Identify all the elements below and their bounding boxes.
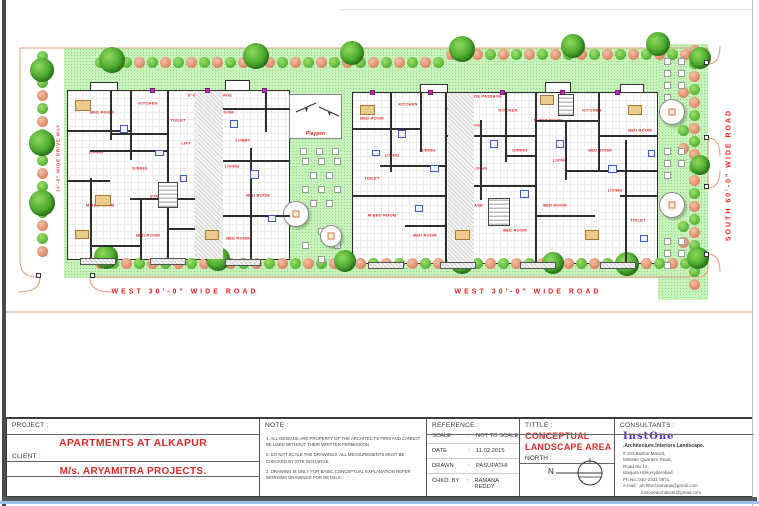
furniture — [490, 140, 498, 148]
shrub-icon — [576, 258, 587, 269]
gazebo — [320, 225, 342, 247]
door-mark — [560, 90, 565, 95]
furniture — [268, 215, 276, 222]
wall — [620, 195, 658, 197]
shrub-icon — [225, 57, 236, 68]
reference-row: DATE:11.02.2015 — [427, 444, 519, 458]
furniture — [608, 165, 617, 173]
reference-value: PASUPATHI — [476, 463, 508, 474]
room-label: KITCHEN — [138, 101, 157, 106]
shrub-icon — [329, 57, 340, 68]
shrub-icon — [678, 125, 689, 136]
room-label: LIVING — [225, 164, 240, 169]
tree-icon — [334, 250, 356, 272]
reference-key: DRAWN — [432, 463, 468, 474]
stepping-stone — [332, 148, 339, 155]
stepping-stone — [326, 200, 333, 207]
room-label: TOILET — [364, 176, 379, 181]
wall — [90, 178, 92, 260]
wall — [535, 92, 537, 264]
shrub-icon — [689, 71, 700, 82]
stepping-stone — [664, 82, 671, 89]
balcony — [150, 258, 186, 265]
wall — [90, 245, 140, 247]
west-road-label-right: WEST 30'-0" WIDE ROAD — [455, 289, 602, 296]
furniture — [230, 120, 238, 128]
shrub-icon — [498, 49, 509, 60]
wall — [250, 148, 252, 260]
room-label: LOBBY — [236, 138, 251, 143]
shrub-icon — [212, 57, 223, 68]
reference-row: DRAWN:PASUPATHI — [427, 459, 519, 473]
furniture — [155, 150, 164, 156]
wall — [140, 200, 142, 260]
door-mark — [615, 90, 620, 95]
stepping-stone — [316, 148, 323, 155]
gazebo — [659, 99, 685, 125]
shrub-icon — [37, 116, 48, 127]
shrub-icon — [407, 258, 418, 269]
sheet-top-line — [340, 9, 753, 10]
room-label: BED ROOM — [588, 148, 612, 153]
stepping-stone — [302, 242, 309, 249]
shrub-icon — [134, 57, 145, 68]
shrub-icon — [550, 49, 561, 60]
shrub-icon — [689, 201, 700, 212]
wall — [535, 120, 600, 122]
shrub-icon — [37, 90, 48, 101]
wall — [405, 225, 445, 227]
note-item: 1. ALL DESIGNS ARE PROPERTY OF THE ARCHI… — [266, 436, 422, 448]
reference-label: REFERENCE : — [427, 419, 519, 429]
furniture — [585, 230, 599, 240]
stepping-stone — [302, 158, 309, 165]
shrub-icon — [420, 57, 431, 68]
reference-colon: : — [468, 463, 476, 474]
note-item: 2. DO NOT SCALE THE DRAWINGS. ALL MEASUR… — [266, 452, 422, 464]
shrub-icon — [303, 258, 314, 269]
shrub-icon — [147, 57, 158, 68]
tree-icon — [687, 247, 709, 269]
wall — [167, 90, 169, 260]
tree-icon — [94, 245, 118, 269]
wall — [220, 215, 290, 217]
furniture — [556, 140, 564, 148]
shrub-icon — [277, 258, 288, 269]
shrub-icon — [689, 110, 700, 121]
shrub-icon — [37, 103, 48, 114]
shrub-icon — [563, 258, 574, 269]
note-items: 1. ALL DESIGNS ARE PROPERTY OF THE ARCHI… — [260, 436, 426, 481]
room-label: BED ROOM — [226, 236, 250, 241]
tree-icon — [243, 43, 269, 69]
shrub-icon — [290, 57, 301, 68]
door-mark — [370, 90, 375, 95]
shrub-icon — [678, 221, 689, 232]
gate-post — [90, 273, 95, 278]
room-label: BED ROOM — [628, 128, 652, 133]
tree-icon — [561, 34, 585, 58]
tree-icon — [340, 41, 364, 65]
shrub-icon — [689, 188, 700, 199]
balcony — [600, 262, 636, 269]
wall — [265, 90, 267, 132]
wall — [110, 133, 167, 135]
wall — [625, 140, 627, 264]
door-mark — [150, 88, 155, 93]
sheet-right-border — [752, 0, 753, 506]
note-cell: NOTE : 1. ALL DESIGNS ARE PROPERTY OF TH… — [260, 419, 426, 496]
reference-key: CHKD. BY — [432, 478, 467, 489]
shrub-icon — [186, 57, 197, 68]
stepping-stone — [318, 186, 325, 193]
staircase — [488, 198, 510, 226]
tree-icon — [30, 58, 54, 82]
stepping-stone — [302, 186, 309, 193]
divider — [427, 458, 519, 459]
shrub-icon — [407, 57, 418, 68]
furniture — [540, 95, 554, 105]
door-mark — [500, 90, 505, 95]
stepping-stone — [678, 250, 685, 257]
door-mark — [428, 90, 433, 95]
address-line: instonearchitects@gmail.com — [615, 490, 754, 496]
furniture — [75, 100, 91, 111]
reference-row: SCALE:NOT TO SCALE — [427, 429, 519, 443]
room-label: BED ROOM — [543, 203, 567, 208]
shrub-icon — [689, 227, 700, 238]
shrub-icon — [121, 258, 132, 269]
wall — [465, 185, 535, 187]
playground-area: Playpen — [289, 94, 342, 139]
note-item: 3. DRAWING IS ONLY FOR BASIC CONCEPTUAL … — [266, 469, 422, 481]
furniture — [628, 105, 642, 115]
shrub-icon — [37, 246, 48, 257]
room-label: TOILET — [630, 218, 645, 223]
west-road-label-left: WEST 30'-0" WIDE ROAD — [112, 289, 259, 296]
balcony — [225, 259, 261, 266]
shrub-icon — [316, 57, 327, 68]
tree-icon — [690, 155, 710, 175]
door-mark — [205, 88, 210, 93]
shrub-icon — [485, 258, 496, 269]
wall — [352, 128, 420, 130]
shrub-icon — [689, 97, 700, 108]
furniture — [75, 230, 89, 239]
shrub-icon — [689, 84, 700, 95]
wall — [535, 215, 595, 217]
stepping-stone — [300, 148, 307, 155]
note-label: NOTE : — [260, 419, 426, 429]
stepping-stone — [678, 148, 685, 155]
shrub-icon — [160, 57, 171, 68]
drawing-title-line2: LANDSCAPE AREA — [520, 442, 614, 453]
consultants-label: CONSULTANTS : — [615, 419, 754, 429]
gate-post — [36, 273, 41, 278]
shrub-icon — [186, 258, 197, 269]
shrub-icon — [589, 49, 600, 60]
reference-rows: SCALE:NOT TO SCALEDATE:11.02.2015DRAWN:P… — [427, 429, 519, 488]
room-label: DINING — [132, 166, 147, 171]
wall — [480, 120, 482, 200]
stepping-stone — [664, 262, 671, 269]
stepping-stone — [678, 160, 685, 167]
gate-post — [704, 184, 709, 189]
reference-colon: : — [468, 448, 476, 459]
divider — [427, 443, 519, 444]
room-label: KITCHEN — [398, 102, 417, 107]
wall — [445, 92, 447, 264]
room-label: DINING — [512, 148, 527, 153]
stepping-stone — [318, 158, 325, 165]
furniture — [205, 230, 219, 240]
wall — [505, 155, 535, 157]
shrub-icon — [264, 258, 275, 269]
title-block: PROJECT : APARTMENTS AT ALKAPUR CLIENT :… — [6, 417, 753, 497]
furniture — [415, 205, 423, 212]
consultants-cell: CONSULTANTS : InstOne .Architecture.Inte… — [615, 419, 754, 496]
reference-key: DATE — [432, 448, 468, 459]
staircase — [158, 182, 178, 208]
furniture — [398, 130, 406, 138]
drawing-title-line1: CONCEPTUAL — [520, 429, 614, 442]
south-road-label: SOUTH 60'-0" WIDE ROAD — [726, 109, 733, 241]
room-label: BED ROOM — [503, 228, 527, 233]
gazebo — [659, 192, 685, 218]
shrub-icon — [355, 258, 366, 269]
tree-icon — [29, 130, 55, 156]
balcony — [440, 262, 476, 269]
reference-cell: REFERENCE : SCALE:NOT TO SCALEDATE:11.02… — [427, 419, 519, 496]
gate-post — [704, 60, 709, 65]
consultants-tagline: .Architecture.Interiors.Landscape. — [615, 442, 754, 449]
furniture — [455, 230, 470, 240]
wall — [390, 92, 392, 172]
consultants-address: # 103,Burton Manzil,Minister Quarters Ro… — [615, 451, 754, 496]
shrub-icon — [394, 57, 405, 68]
wall — [67, 180, 110, 182]
playground-label: Playpen — [306, 131, 325, 137]
shrub-icon — [537, 49, 548, 60]
stepping-stone — [664, 58, 671, 65]
shrub-icon — [511, 49, 522, 60]
wall — [505, 92, 507, 162]
shrub-icon — [368, 57, 379, 68]
balcony — [368, 262, 404, 269]
shrub-icon — [485, 49, 496, 60]
tree-icon — [449, 36, 475, 62]
stepping-stone — [664, 172, 671, 179]
wall — [598, 92, 600, 172]
room-label: BED ROOM — [360, 116, 384, 121]
shrub-icon — [277, 57, 288, 68]
wall — [420, 92, 422, 152]
shrub-icon — [524, 49, 535, 60]
gate-post — [704, 252, 709, 257]
room-label: LIVING — [608, 188, 623, 193]
tree-icon — [99, 47, 125, 73]
shrub-icon — [420, 258, 431, 269]
stepping-stone — [664, 160, 671, 167]
room-label: KITCHEN — [498, 108, 517, 113]
site-plan: Playpen WEST 30'-0" WIDE ROAD WEST 30'-0… — [0, 0, 759, 417]
stepping-stone — [678, 238, 685, 245]
shrub-icon — [498, 258, 509, 269]
furniture — [640, 235, 648, 242]
north-indicator: NORTH : N — [520, 453, 614, 489]
furniture — [430, 165, 439, 172]
shrub-icon — [689, 136, 700, 147]
title-cell: TITTLE : CONCEPTUAL LANDSCAPE AREA NORTH… — [520, 419, 614, 496]
shrub-icon — [689, 123, 700, 134]
divider — [427, 473, 519, 474]
stepping-stone — [310, 172, 317, 179]
furniture — [372, 150, 380, 156]
sheet-bottom-blue-line — [0, 501, 759, 504]
room-label: LIVING — [385, 153, 400, 158]
tree-icon — [646, 32, 670, 56]
furniture — [520, 190, 529, 198]
compass-icon — [554, 457, 610, 489]
room-label: BED ROOM — [413, 233, 437, 238]
shrub-icon — [173, 57, 184, 68]
balcony — [520, 262, 556, 269]
reference-colon: : — [467, 478, 475, 489]
tree-icon — [29, 190, 55, 216]
stepping-stone — [334, 158, 341, 165]
balcony — [80, 258, 116, 265]
shrub-icon — [37, 168, 48, 179]
reference-value: 11.02.2015 — [476, 448, 505, 459]
furniture — [95, 195, 111, 206]
instone-logo: InstOne — [615, 429, 754, 442]
stepping-stone — [678, 58, 685, 65]
wall — [352, 195, 445, 197]
door-mark — [262, 88, 267, 93]
shrub-icon — [689, 279, 700, 290]
shrub-icon — [37, 233, 48, 244]
sheet-left-border — [2, 0, 6, 506]
drawing-sheet: Playpen WEST 30'-0" WIDE ROAD WEST 30'-0… — [0, 0, 759, 506]
shrub-icon — [689, 175, 700, 186]
shrub-icon — [602, 49, 613, 60]
stepping-stone — [318, 256, 325, 263]
title-label: TITTLE : — [520, 419, 614, 429]
shrub-icon — [589, 258, 600, 269]
room-label: M.BED ROOM — [368, 213, 396, 218]
staircase — [558, 94, 574, 116]
driveway-label: 14'-0" WIDE DRIVE WAY — [56, 124, 61, 192]
shrub-icon — [615, 49, 626, 60]
reference-value: RAMANA REDDY — [474, 478, 519, 489]
furniture — [648, 150, 655, 157]
stepping-stone — [678, 70, 685, 77]
shrub-icon — [433, 57, 444, 68]
shrub-icon — [303, 57, 314, 68]
tree-icon — [689, 47, 711, 69]
shrub-icon — [37, 155, 48, 166]
stepping-stone — [678, 82, 685, 89]
stepping-stone — [664, 238, 671, 245]
gate-post — [704, 135, 709, 140]
shrub-icon — [290, 258, 301, 269]
shrub-icon — [628, 49, 639, 60]
project-cell: PROJECT : APARTMENTS AT ALKAPUR CLIENT :… — [7, 419, 259, 496]
wall — [598, 135, 658, 137]
furniture — [360, 105, 375, 115]
project-label: PROJECT : — [7, 419, 259, 429]
shrub-icon — [641, 258, 652, 269]
stepping-stone — [664, 250, 671, 257]
project-value: APARTMENTS AT ALKAPUR — [7, 437, 259, 449]
room-label: LIFT — [181, 141, 190, 146]
shrub-icon — [689, 214, 700, 225]
seesaw-icon — [318, 105, 340, 118]
client-label: CLIENT : — [7, 449, 259, 460]
shrub-icon — [37, 220, 48, 231]
furniture — [250, 170, 259, 179]
furniture — [120, 125, 128, 133]
north-letter: N — [548, 467, 554, 476]
shrub-icon — [381, 57, 392, 68]
reference-row: CHKD. BY:RAMANA REDDY — [427, 474, 519, 488]
room-label: TOILET — [170, 118, 185, 123]
shrub-icon — [199, 57, 210, 68]
stepping-stone — [310, 200, 317, 207]
seesaw-icon — [295, 101, 317, 114]
stepping-stone — [664, 148, 671, 155]
stepping-stone — [334, 186, 341, 193]
stepping-stone — [664, 70, 671, 77]
stepping-stone — [326, 172, 333, 179]
room-label: DINING — [420, 148, 435, 153]
gazebo — [283, 201, 309, 227]
furniture — [180, 175, 187, 182]
